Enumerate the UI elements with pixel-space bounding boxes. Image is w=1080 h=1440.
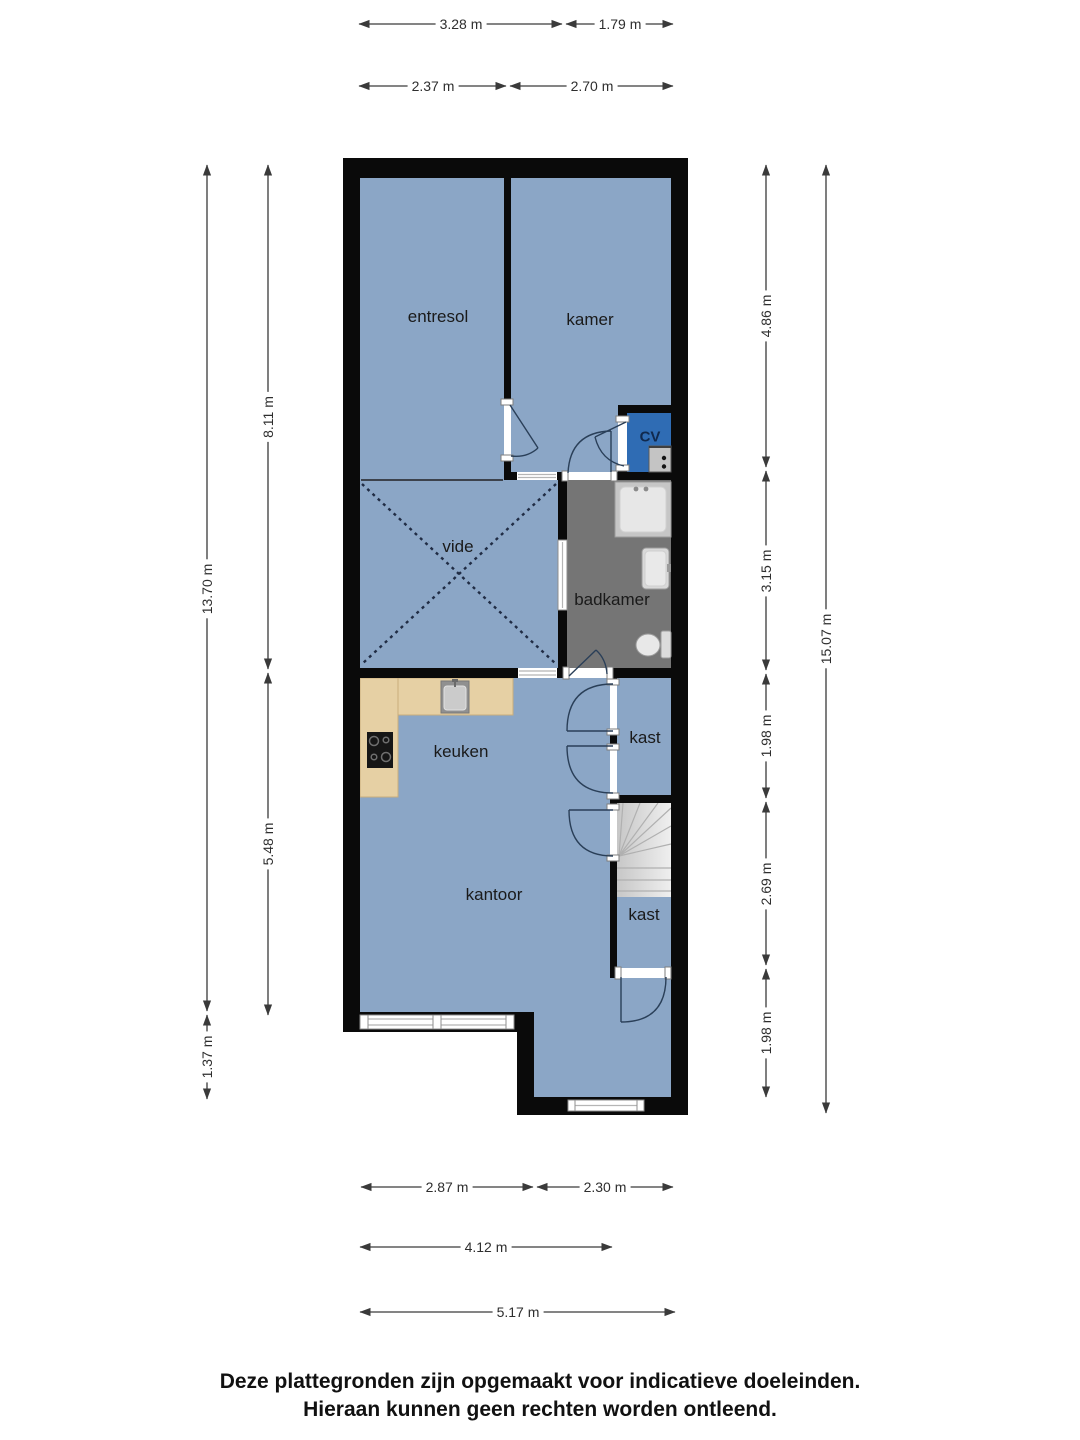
dim-left-outer-2: 1.37 m — [199, 1032, 215, 1083]
kitchen-sink-fixture — [441, 679, 469, 713]
dim-right-5: 1.98 m — [758, 1008, 774, 1059]
dim-left-inner-2: 5.48 m — [260, 819, 276, 870]
floorplan-drawing — [0, 0, 1080, 1440]
dim-top-2: 1.79 m — [595, 16, 646, 32]
door-kamer-hall — [567, 472, 612, 480]
dim-bottom-2: 2.30 m — [580, 1179, 631, 1195]
dim-right-2: 3.15 m — [758, 546, 774, 597]
dim-right-4: 2.69 m — [758, 859, 774, 910]
room-label-keuken: keuken — [434, 742, 489, 762]
dim-left-outer-1: 13.70 m — [199, 560, 215, 619]
vide-opening-top — [517, 472, 557, 480]
dim-top-3: 2.37 m — [408, 78, 459, 94]
room-label-kast-top: kast — [629, 728, 660, 748]
dim-right-3: 1.98 m — [758, 711, 774, 762]
dim-bottom-3: 4.12 m — [461, 1239, 512, 1255]
dim-bottom-4: 5.17 m — [493, 1304, 544, 1320]
room-label-vide: vide — [442, 537, 473, 557]
door-kast-top-1 — [610, 683, 617, 730]
door-kast-top-2 — [610, 747, 617, 794]
disclaimer-line-1: Deze plattegronden zijn opgemaakt voor i… — [0, 1368, 1080, 1396]
boiler-fixture — [649, 446, 671, 472]
dim-bottom-1: 2.87 m — [422, 1179, 473, 1195]
door-entresol-kamer — [504, 404, 511, 456]
door-badkamer — [568, 668, 608, 678]
shower-fixture — [615, 482, 671, 537]
room-label-badkamer: badkamer — [574, 590, 650, 610]
floor-areas — [360, 178, 671, 1097]
floor-extension — [534, 1012, 671, 1097]
dim-left-inner-1: 8.11 m — [260, 392, 276, 442]
door-kast-bottom — [620, 968, 666, 978]
dim-top-1: 3.28 m — [436, 16, 487, 32]
room-label-kantoor: kantoor — [466, 885, 523, 905]
cooktop-fixture — [367, 732, 393, 768]
floorplan-page: entresol kamer CV vide badkamer keuken k… — [0, 0, 1080, 1440]
room-label-kast-bottom: kast — [628, 905, 659, 925]
room-label-entresol: entresol — [408, 307, 468, 327]
dim-right-outer: 15.07 m — [818, 610, 834, 669]
disclaimer: Deze plattegronden zijn opgemaakt voor i… — [0, 1368, 1080, 1424]
door-stairs — [610, 808, 617, 856]
door-cv — [618, 421, 627, 466]
room-label-kamer: kamer — [566, 310, 613, 330]
sink-fixture — [642, 548, 671, 589]
room-label-cv: CV — [640, 429, 661, 446]
disclaimer-line-2: Hieraan kunnen geen rechten worden ontle… — [0, 1396, 1080, 1424]
vide-opening-bottom — [518, 668, 557, 678]
dim-right-1: 4.86 m — [758, 291, 774, 342]
dim-top-4: 2.70 m — [567, 78, 618, 94]
